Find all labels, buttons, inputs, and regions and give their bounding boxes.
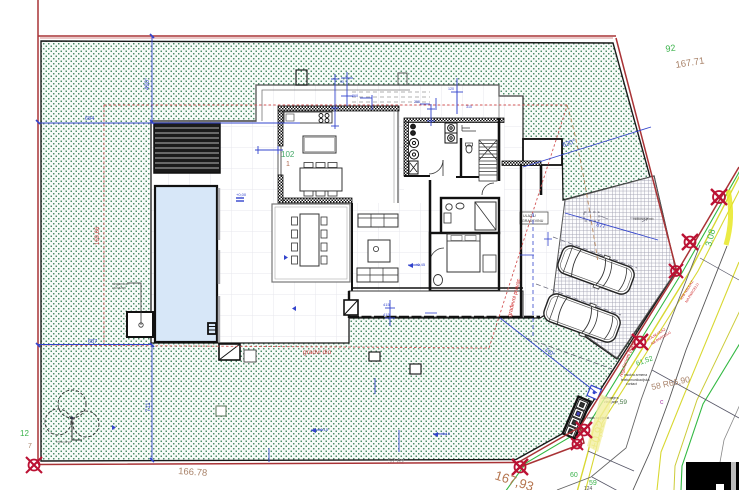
svg-text:gradvi dio: gradvi dio: [303, 349, 332, 356]
svg-text:vidikova jemb: vidikova jemb: [633, 217, 654, 221]
svg-text:7: 7: [28, 443, 32, 450]
svg-text:310: 310: [466, 105, 472, 109]
svg-text:c: c: [660, 399, 664, 406]
svg-text:360: 360: [352, 94, 358, 98]
svg-text:255: 255: [414, 100, 420, 104]
svg-text:60: 60: [570, 472, 578, 479]
svg-text:687: 687: [88, 339, 97, 345]
svg-text:visokra armena: visokra armena: [624, 373, 647, 377]
svg-text:+0,45: +0,45: [415, 262, 426, 267]
svg-text:ULAZ U: ULAZ U: [523, 214, 536, 218]
svg-text:169,66: 169,66: [95, 226, 101, 245]
svg-text:12: 12: [20, 429, 29, 438]
svg-text:124: 124: [584, 486, 593, 490]
svg-text:1: 1: [286, 161, 290, 168]
svg-text:166.78: 166.78: [178, 466, 208, 479]
svg-text:120: 120: [448, 87, 454, 91]
svg-text:684: 684: [85, 116, 94, 122]
svg-text:+0,15: +0,15: [440, 431, 451, 436]
svg-text:+0,00: +0,00: [236, 192, 247, 197]
svg-text:za bazen: za bazen: [112, 286, 126, 290]
svg-text:92: 92: [665, 43, 676, 54]
svg-text:415: 415: [383, 302, 390, 307]
svg-text:+0,15: +0,15: [318, 427, 329, 432]
svg-text:490°: 490°: [145, 77, 151, 90]
svg-text:102: 102: [281, 150, 295, 159]
svg-text:,59: ,59: [618, 399, 627, 406]
svg-text:415: 415: [383, 312, 390, 317]
svg-text:vrtno drvo: vrtno drvo: [56, 440, 71, 444]
svg-text:57.62: 57.62: [388, 458, 405, 466]
svg-text:contact: contact: [626, 382, 637, 386]
svg-text:95: 95: [340, 80, 344, 84]
svg-text:711°: 711°: [146, 399, 152, 412]
